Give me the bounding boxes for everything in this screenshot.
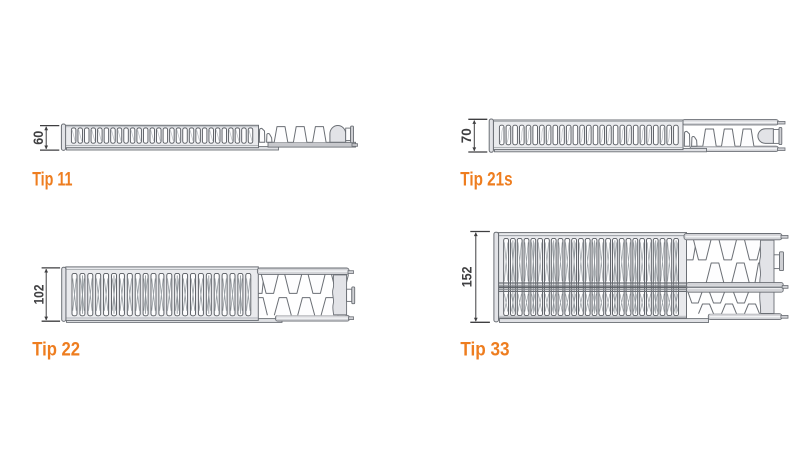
svg-text:Tip 11: Tip 11	[32, 169, 73, 190]
svg-text:Tip 33: Tip 33	[460, 340, 509, 361]
svg-text:152: 152	[459, 266, 474, 287]
svg-text:Tip 21s: Tip 21s	[460, 169, 512, 190]
svg-text:102: 102	[31, 284, 46, 304]
svg-text:70: 70	[459, 128, 474, 143]
svg-text:60: 60	[31, 131, 46, 145]
svg-text:Tip 22: Tip 22	[32, 340, 80, 361]
